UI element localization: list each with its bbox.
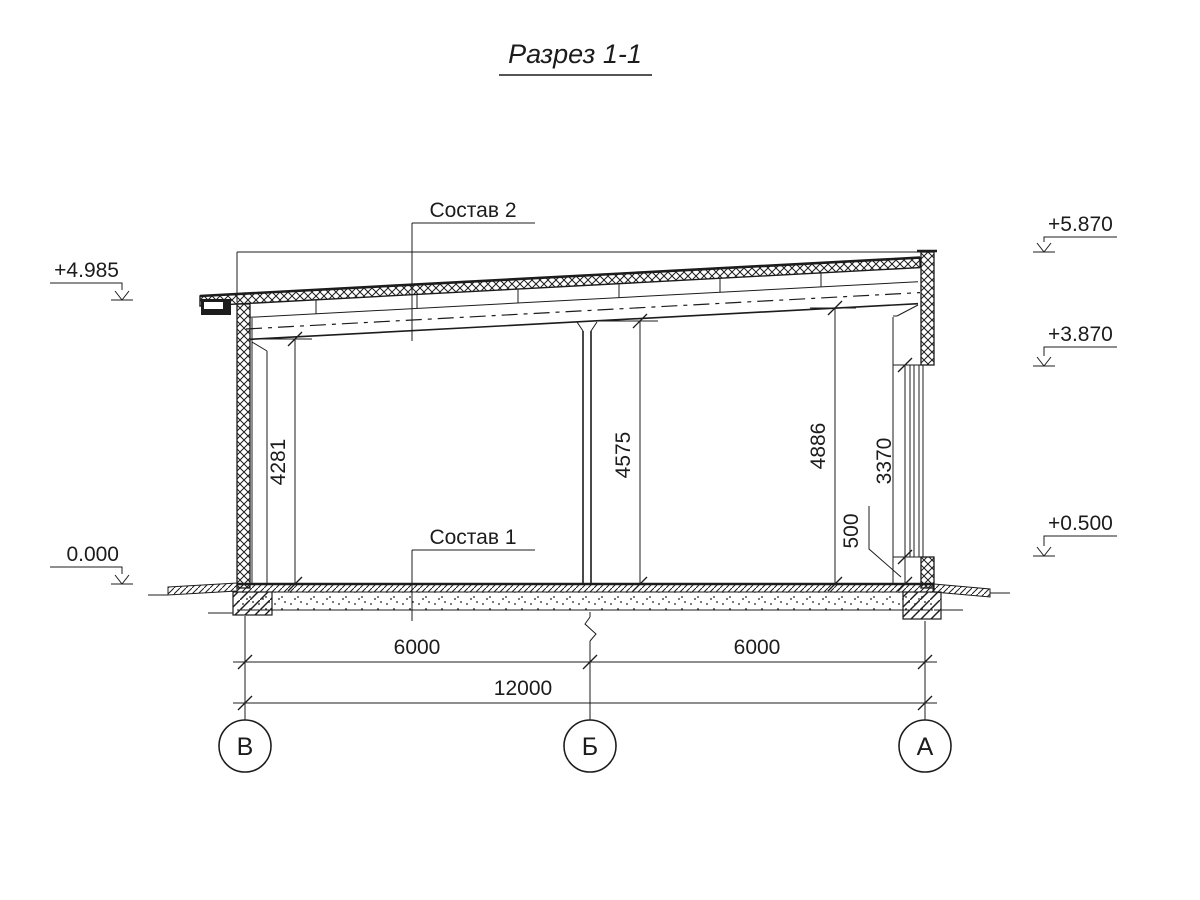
left-wall — [237, 304, 267, 588]
dim-total-value: 12000 — [494, 677, 552, 700]
callout-roof-label: Состав 2 — [429, 199, 516, 222]
elevation-right-window-top-value: +3.870 — [1048, 323, 1113, 346]
dimension-sill-height: 500 — [840, 506, 901, 577]
grid-axis-v: В — [219, 720, 271, 772]
dimension-row-total: 12000 — [233, 677, 937, 710]
left-apron — [168, 583, 237, 595]
right-wall — [893, 251, 937, 588]
dim-right-clear-height-value: 4886 — [807, 423, 830, 470]
window-glazing — [910, 365, 923, 557]
elevation-left-floor: 0.000 — [50, 543, 133, 584]
dim-left-clear-height-value: 4281 — [267, 439, 290, 486]
right-wall-haunch — [897, 305, 918, 316]
floor-assembly — [148, 583, 1010, 619]
dimension-row-bays: 6000 6000 — [233, 636, 937, 669]
middle-column — [577, 322, 597, 584]
dim-bay-right-value: 6000 — [734, 636, 781, 659]
left-wall-panel — [237, 304, 250, 588]
floor-slab-stipple — [237, 592, 933, 610]
break-symbol — [585, 617, 596, 641]
elevation-right-sill-value: +0.500 — [1048, 512, 1113, 535]
dimension-middle-clear-height: 4575 — [592, 314, 658, 591]
right-parapet-panel — [921, 252, 934, 365]
elevation-left-roof: +4.985 — [50, 259, 133, 300]
roof-beam-bottom-line — [250, 304, 918, 340]
grid-axis-b-label: Б — [582, 733, 598, 761]
dim-window-height-value: 3370 — [873, 438, 896, 485]
roof-assembly — [200, 258, 920, 340]
right-footing — [903, 592, 941, 619]
dim-middle-clear-height-value: 4575 — [612, 432, 635, 479]
grid-extension-lines — [245, 612, 925, 720]
grid-axis-a: А — [899, 720, 951, 772]
callout-floor-label: Состав 1 — [429, 526, 516, 549]
drawing-title: Разрез 1-1 — [499, 39, 652, 75]
callout-roof-composition: Состав 2 — [412, 199, 535, 341]
left-footing — [233, 592, 272, 615]
elevation-left-roof-value: +4.985 — [54, 259, 119, 282]
roof-eaves-cap — [201, 299, 231, 315]
grid-axis-v-label: В — [237, 733, 254, 761]
left-wall-haunch — [252, 342, 267, 351]
grid-axis-a-label: А — [917, 733, 934, 761]
title-text: Разрез 1-1 — [508, 39, 642, 69]
right-apron — [934, 584, 990, 597]
elevation-right-window-top: +3.870 — [1033, 323, 1117, 366]
grid-axis-b: Б — [564, 720, 616, 772]
drawing-sheet: Разрез 1-1 — [0, 0, 1200, 900]
roof-top-line — [200, 258, 920, 296]
dim-sill-height-value: 500 — [840, 513, 863, 548]
column-cap-left — [577, 322, 583, 331]
elevation-right-parapet: +5.870 — [1033, 213, 1117, 252]
dim-bay-left-value: 6000 — [394, 636, 441, 659]
column-cap-right — [591, 322, 597, 331]
elevation-right-parapet-value: +5.870 — [1048, 213, 1113, 236]
dimension-left-clear-height: 4281 — [255, 332, 312, 591]
elevation-left-floor-value: 0.000 — [66, 543, 119, 566]
section-drawing: Разрез 1-1 — [0, 0, 1200, 900]
elevation-right-sill: +0.500 — [1033, 512, 1117, 556]
